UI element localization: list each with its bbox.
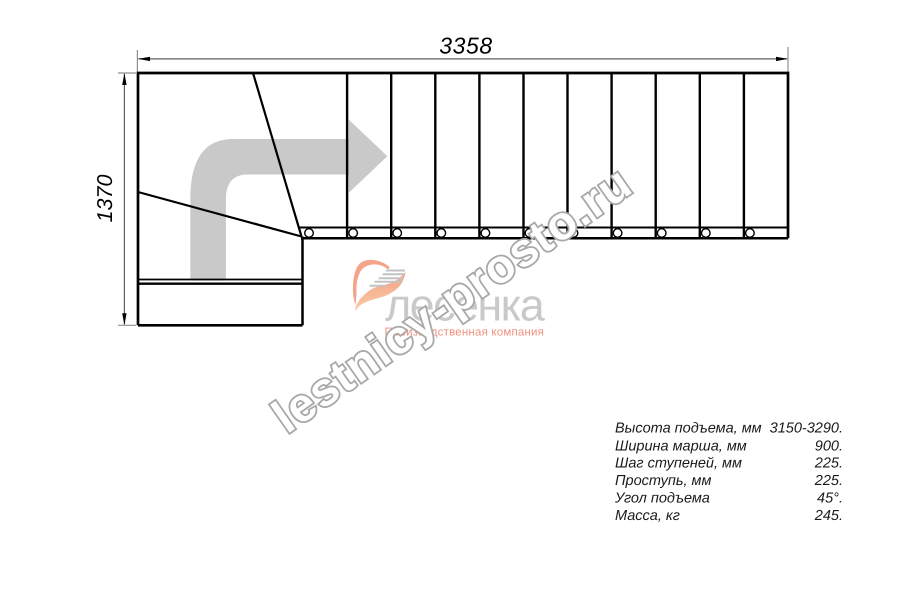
svg-text:Масса, кг: Масса, кг	[615, 508, 680, 524]
svg-text:Проступь, мм: Проступь, мм	[615, 473, 711, 489]
svg-text:1370: 1370	[93, 175, 117, 223]
svg-text:245.: 245.	[814, 508, 843, 524]
svg-text:Высота подъема, мм: Высота подъема, мм	[615, 421, 762, 437]
svg-text:900.: 900.	[815, 439, 843, 455]
svg-text:Угол подъема: Угол подъема	[614, 491, 710, 507]
svg-text:Шаг ступеней, мм: Шаг ступеней, мм	[615, 456, 742, 472]
svg-text:225.: 225.	[814, 456, 843, 472]
svg-text:3150-3290.: 3150-3290.	[770, 421, 843, 437]
svg-text:3358: 3358	[439, 33, 493, 59]
svg-text:Ширина марша, мм: Ширина марша, мм	[615, 439, 747, 455]
svg-text:225.: 225.	[814, 473, 843, 489]
svg-text:45°.: 45°.	[817, 491, 843, 507]
